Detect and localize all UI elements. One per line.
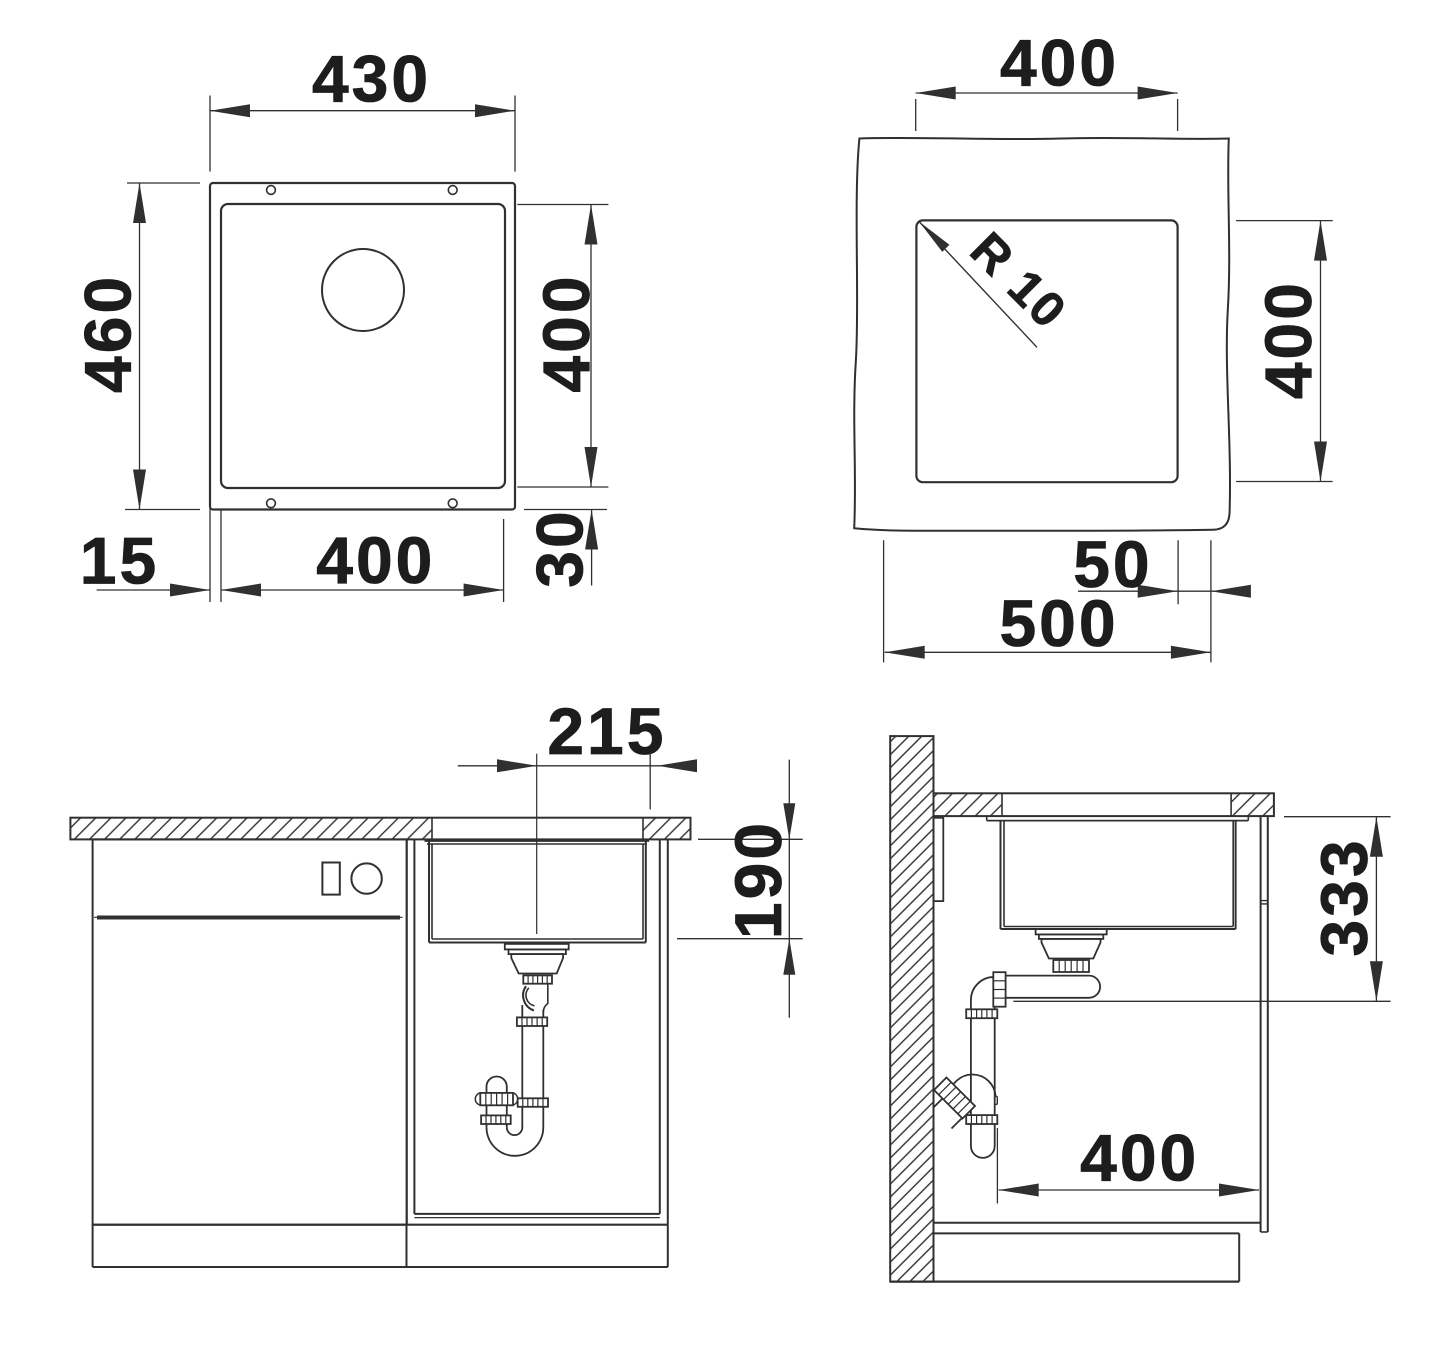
svg-text:R 10: R 10 [960,223,1077,340]
svg-text:500: 500 [999,586,1118,660]
svg-text:215: 215 [547,694,666,768]
svg-text:430: 430 [312,42,431,116]
svg-text:190: 190 [721,820,795,939]
svg-text:400: 400 [1000,26,1119,100]
svg-text:30: 30 [523,508,597,587]
svg-text:400: 400 [529,273,603,392]
svg-text:15: 15 [80,523,159,597]
svg-text:400: 400 [1080,1121,1199,1195]
svg-text:400: 400 [316,523,435,597]
svg-text:400: 400 [1251,280,1325,399]
svg-text:460: 460 [70,274,144,393]
svg-text:333: 333 [1307,837,1381,956]
